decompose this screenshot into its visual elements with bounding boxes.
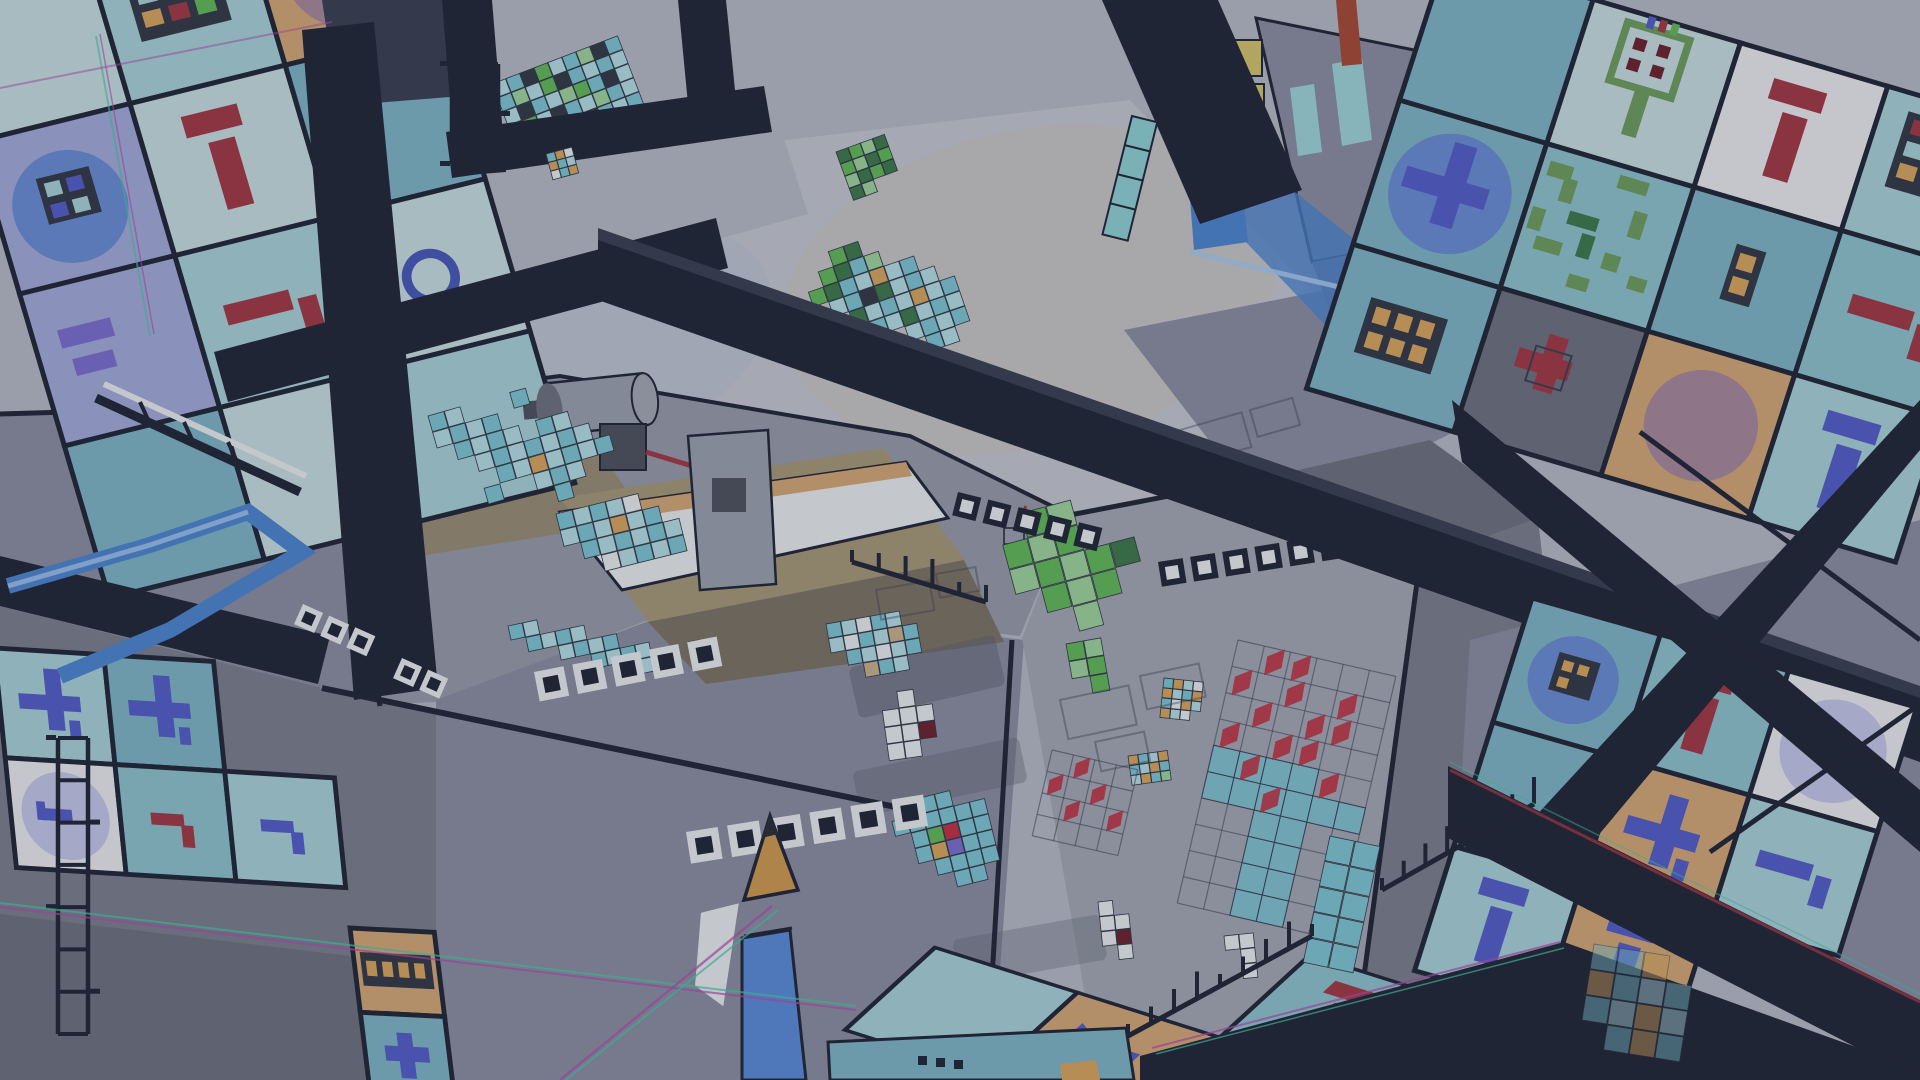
dim-overlay: [0, 0, 1920, 1080]
scene-canvas: [0, 0, 1920, 1080]
game-viewport[interactable]: [0, 0, 1920, 1080]
